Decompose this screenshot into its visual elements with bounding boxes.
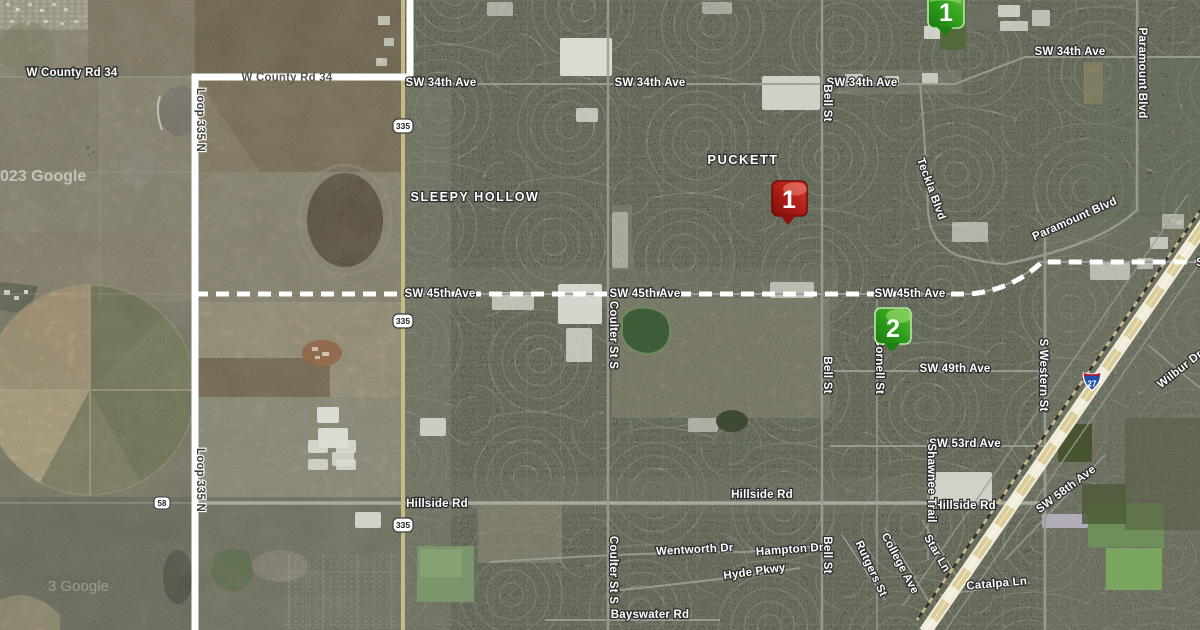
svg-text:SW 45th Ave: SW 45th Ave	[874, 288, 945, 300]
svg-text:Loop 335 N: Loop 335 N	[194, 88, 206, 152]
svg-text:SW: SW	[1196, 257, 1200, 269]
svg-text:Coulter St S: Coulter St S	[607, 536, 619, 604]
svg-text:Hillside Rd: Hillside Rd	[406, 498, 468, 510]
svg-text:Bayswater Rd: Bayswater Rd	[611, 609, 689, 621]
svg-text:335: 335	[396, 520, 410, 530]
svg-text:27: 27	[1088, 380, 1097, 389]
svg-text:Bell St: Bell St	[821, 536, 833, 573]
svg-text:Hillside Rd: Hillside Rd	[934, 500, 996, 512]
svg-text:SW 49th Ave: SW 49th Ave	[919, 363, 990, 375]
svg-text:W County Rd 34: W County Rd 34	[27, 67, 118, 79]
svg-text:1: 1	[782, 186, 796, 214]
svg-text:58: 58	[158, 499, 167, 508]
svg-text:SW 34th Ave: SW 34th Ave	[614, 77, 685, 89]
svg-text:Bell St: Bell St	[821, 356, 833, 393]
svg-text:3 Google: 3 Google	[48, 578, 109, 595]
svg-text:023 Google: 023 Google	[0, 168, 86, 185]
svg-text:SW 45th Ave: SW 45th Ave	[609, 288, 680, 300]
svg-text:2: 2	[886, 315, 900, 343]
svg-text:335: 335	[396, 121, 410, 131]
svg-text:1: 1	[939, 0, 953, 27]
svg-text:S Western St: S Western St	[1037, 338, 1049, 411]
svg-text:SW 34th Ave: SW 34th Ave	[826, 77, 897, 89]
svg-text:PUCKETT: PUCKETT	[707, 152, 778, 167]
svg-text:Bell St: Bell St	[821, 84, 833, 121]
svg-text:W County Rd 34: W County Rd 34	[242, 72, 333, 84]
svg-text:Paramount Blvd: Paramount Blvd	[1136, 28, 1148, 119]
svg-text:SW 34th Ave: SW 34th Ave	[1034, 46, 1105, 58]
svg-text:Loop 335 N: Loop 335 N	[194, 448, 206, 512]
svg-text:SW 45th Ave: SW 45th Ave	[404, 288, 475, 300]
svg-text:SW 53rd Ave: SW 53rd Ave	[929, 438, 1001, 450]
svg-text:335: 335	[396, 316, 410, 326]
svg-text:SW 34th Ave: SW 34th Ave	[405, 77, 476, 89]
svg-text:SLEEPY HOLLOW: SLEEPY HOLLOW	[411, 190, 540, 204]
svg-text:Shawnee Trail: Shawnee Trail	[925, 443, 937, 522]
svg-text:Hillside Rd: Hillside Rd	[731, 489, 793, 501]
svg-text:Coulter St S: Coulter St S	[607, 301, 619, 369]
svg-text:Cornell St: Cornell St	[873, 338, 885, 394]
